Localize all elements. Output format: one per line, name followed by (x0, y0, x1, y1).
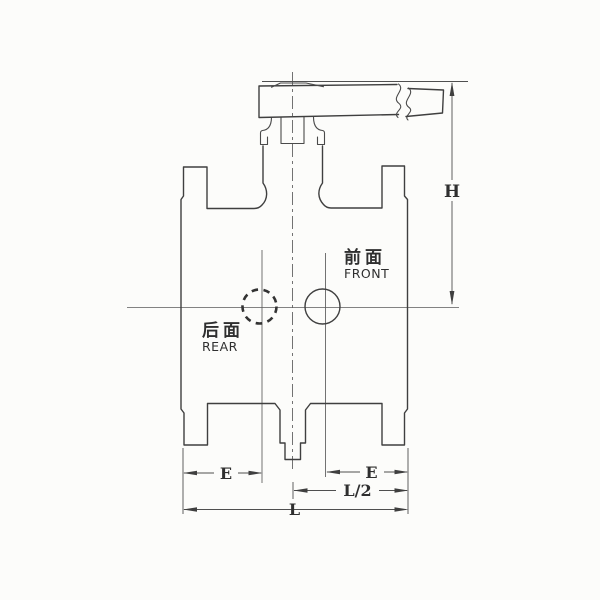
e-right-arrow-left (326, 470, 340, 475)
h-dimension-label: H (444, 182, 460, 202)
rear-label-cn: 后面 (202, 321, 244, 341)
l-arrow-right (395, 507, 409, 512)
h-arrow-up (450, 82, 455, 96)
handle-break-line-2 (406, 88, 410, 120)
e-left-dimension-label: E (220, 464, 232, 483)
gland-bracket-right (314, 117, 325, 145)
handle-end-piece (406, 89, 444, 117)
handle-bar (259, 85, 399, 118)
l-arrow-left (183, 507, 197, 512)
front-port-circle (305, 289, 340, 324)
l-half-arrow-right (395, 488, 409, 493)
e-right-dimension-label: E (365, 463, 377, 482)
drawing-sheet: H E E L/2 L 前面 FRONT 后面 REAR (0, 0, 600, 600)
l-half-dimension-label: L/2 (343, 481, 371, 500)
h-arrow-down (450, 291, 455, 305)
gland-bracket-left (261, 117, 272, 145)
handle-break-line-1 (396, 84, 400, 118)
l-half-arrow-left (294, 488, 308, 493)
e-left-arrow-right (249, 471, 263, 476)
rear-label-en: REAR (202, 339, 238, 354)
e-right-arrow-right (395, 470, 409, 475)
front-label-cn: 前面 (344, 247, 386, 268)
valve-body-outline (181, 146, 408, 460)
front-label-en: FRONT (344, 266, 389, 281)
l-dimension-label: L (289, 500, 300, 519)
rear-port-circle (243, 290, 277, 324)
e-left-arrow-left (183, 471, 197, 476)
valve-drawing: H E E L/2 L 前面 FRONT 后面 REAR (0, 0, 600, 600)
